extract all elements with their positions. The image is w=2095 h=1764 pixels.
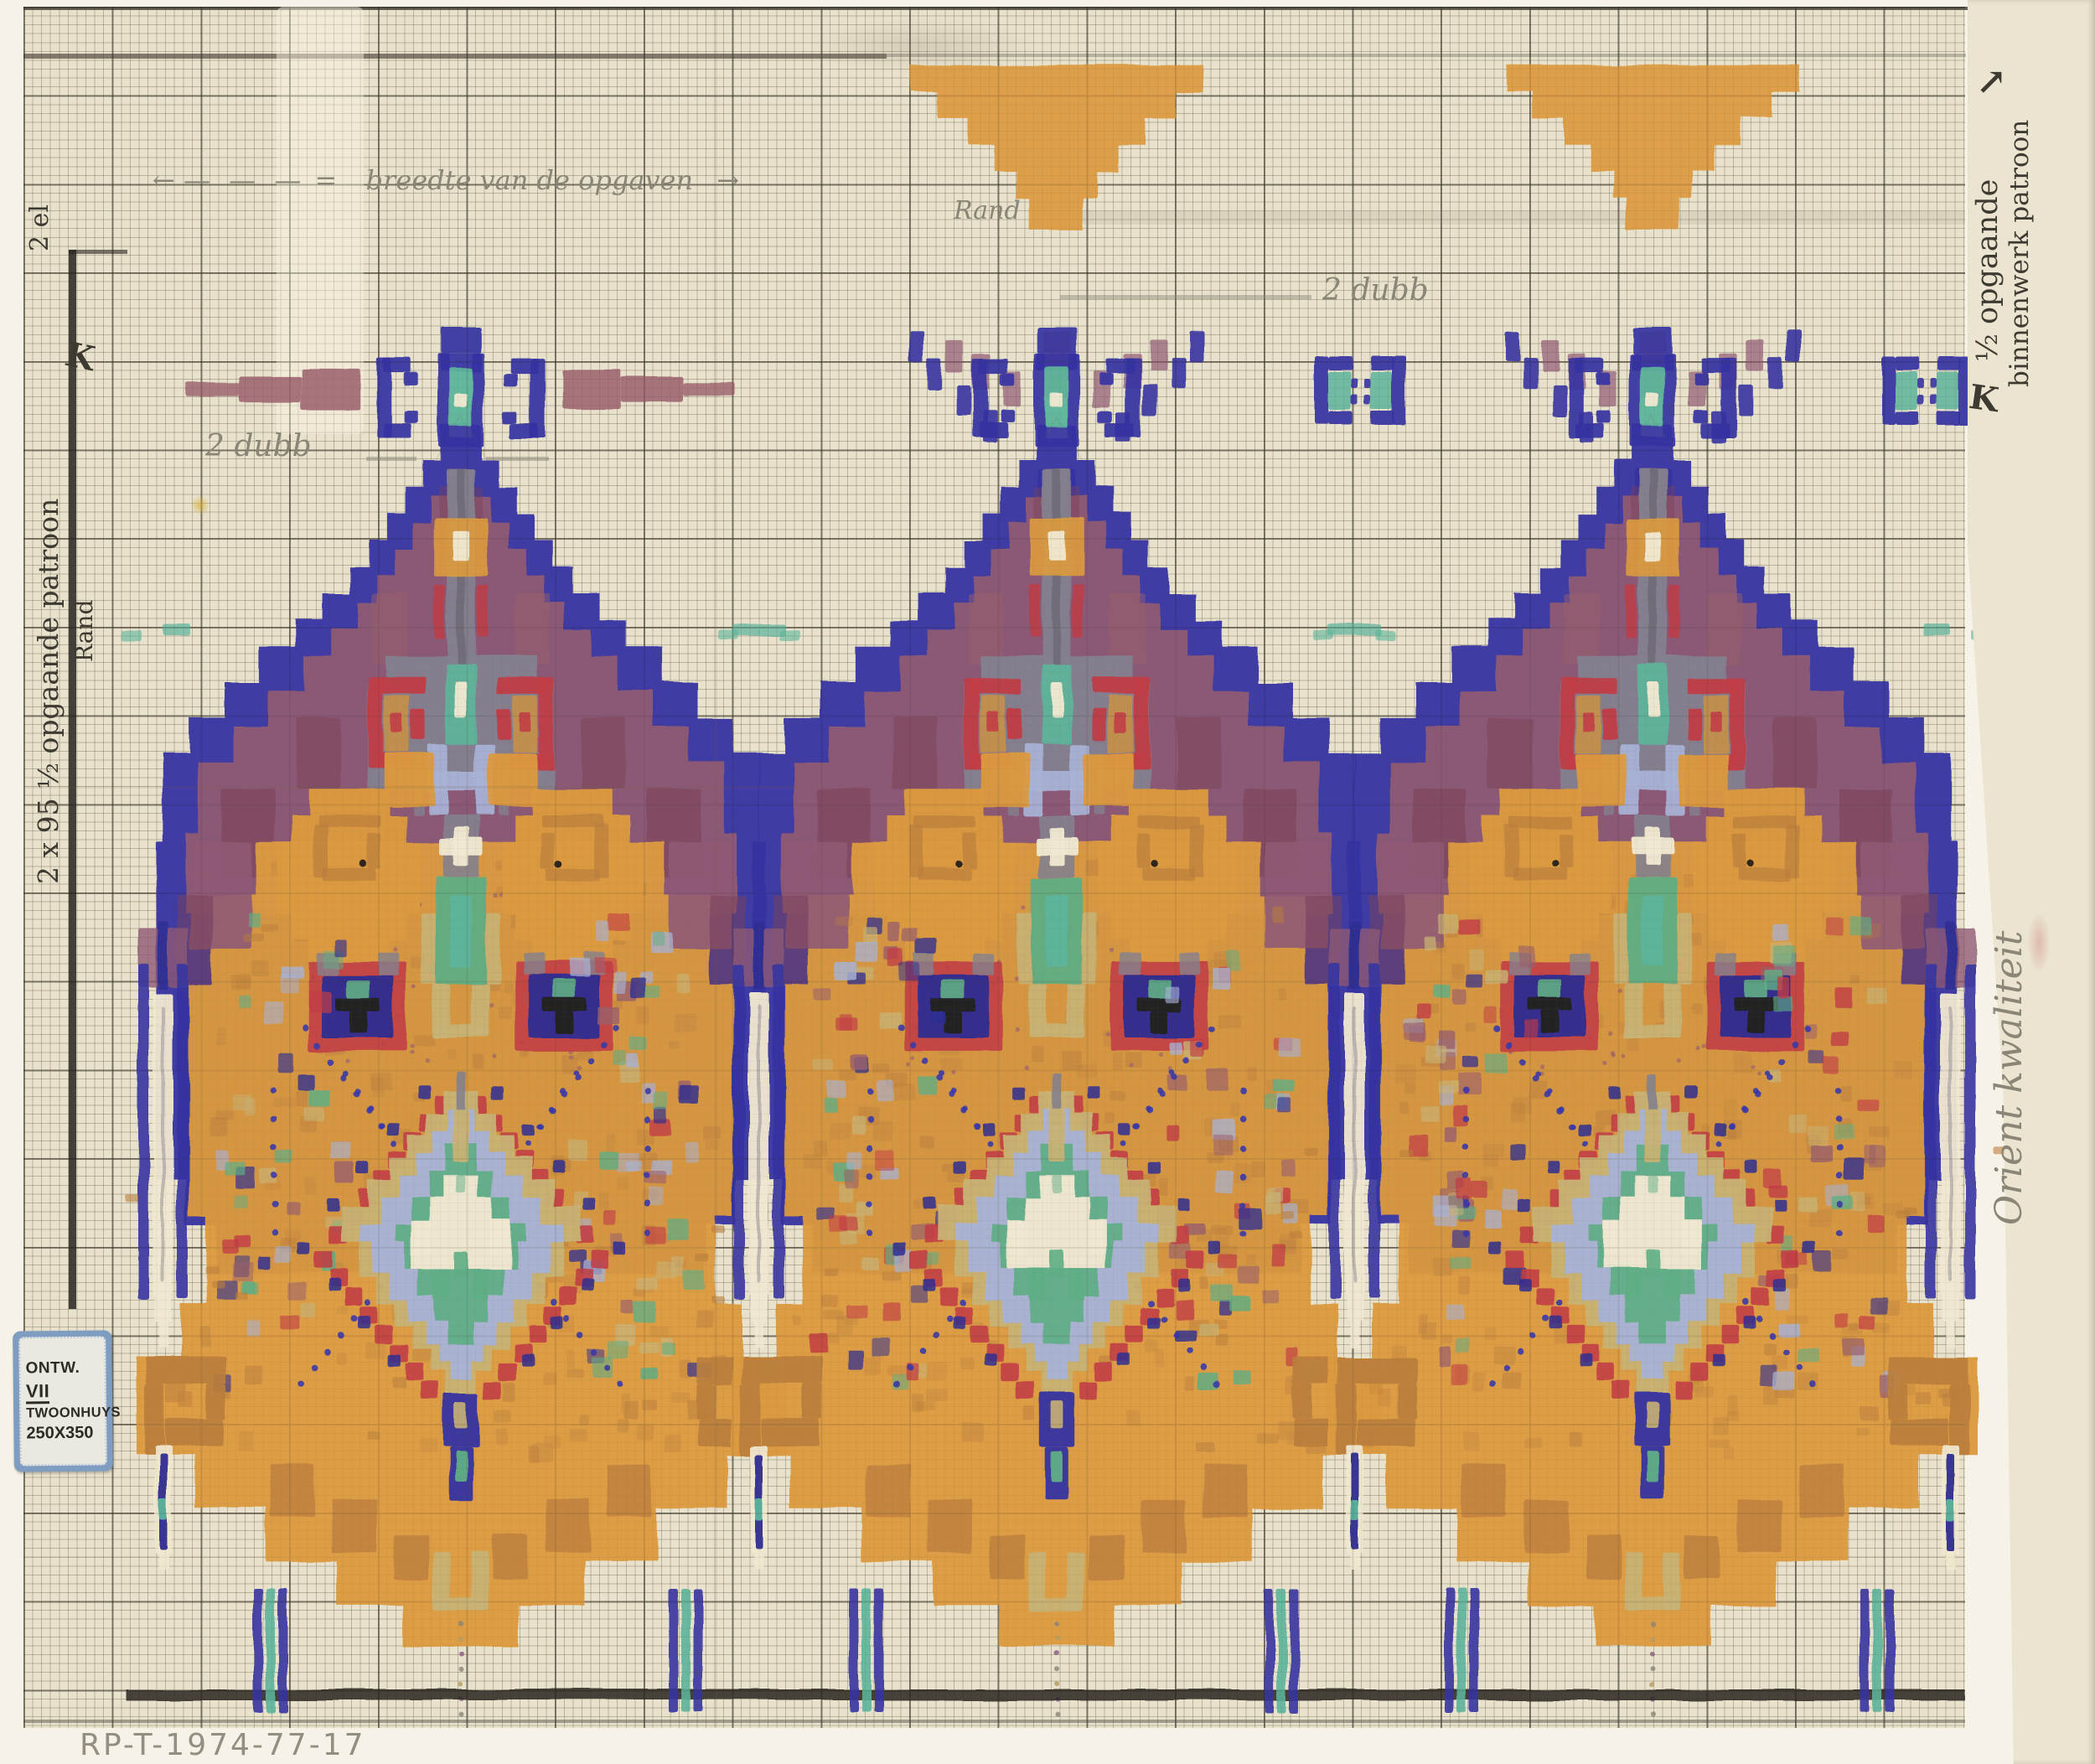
left-margin-rand-note: Rand	[70, 600, 98, 662]
left-ink-mark: 2 el	[25, 204, 54, 251]
top-width-note: ← — — — = breedte van de opgaven →	[153, 164, 739, 196]
scanned-design-sheet: ← — — — = breedte van de opgaven → Rand …	[0, 0, 2095, 1764]
equals-mark: =	[315, 164, 338, 196]
orient-quality-note: Orient kwaliteit	[1988, 931, 2030, 1225]
strip-arrow-ne-icon: ↗	[1976, 60, 2007, 103]
label-prefix: ONTW.	[25, 1358, 80, 1377]
textile-pattern-drawing	[0, 0, 2095, 1764]
label-title: TWOONHUYS	[26, 1404, 105, 1423]
dash-marks: — — —	[184, 164, 306, 196]
rand-note: Rand	[954, 196, 1021, 225]
top-note-text: breedte van de opgaven	[365, 164, 693, 196]
dub-note-left: 2 dubb	[205, 429, 312, 463]
strip-arrow-k-icon: K	[1967, 377, 2001, 420]
label-number: VII	[26, 1381, 50, 1404]
arrow-right-icon: →	[716, 164, 739, 196]
strip-note-2: binnenwerk patroon	[2004, 120, 2035, 387]
label-size: 250X350	[26, 1422, 105, 1446]
strip-note-1: ½ opgaande	[1971, 179, 2004, 362]
inventory-number: RP-T-1974-77-17	[80, 1728, 366, 1762]
inventory-label: ONTW. VII TWOONHUYS 250X350	[13, 1330, 113, 1472]
left-margin-note: 2 x 95 ½ opgaande patroon	[32, 499, 65, 884]
inventory-label-card: ONTW. VII TWOONHUYS 250X350	[18, 1336, 107, 1466]
dub-note-right: 2 dubb	[1322, 273, 1429, 308]
arrow-left-icon: ←	[153, 164, 175, 196]
